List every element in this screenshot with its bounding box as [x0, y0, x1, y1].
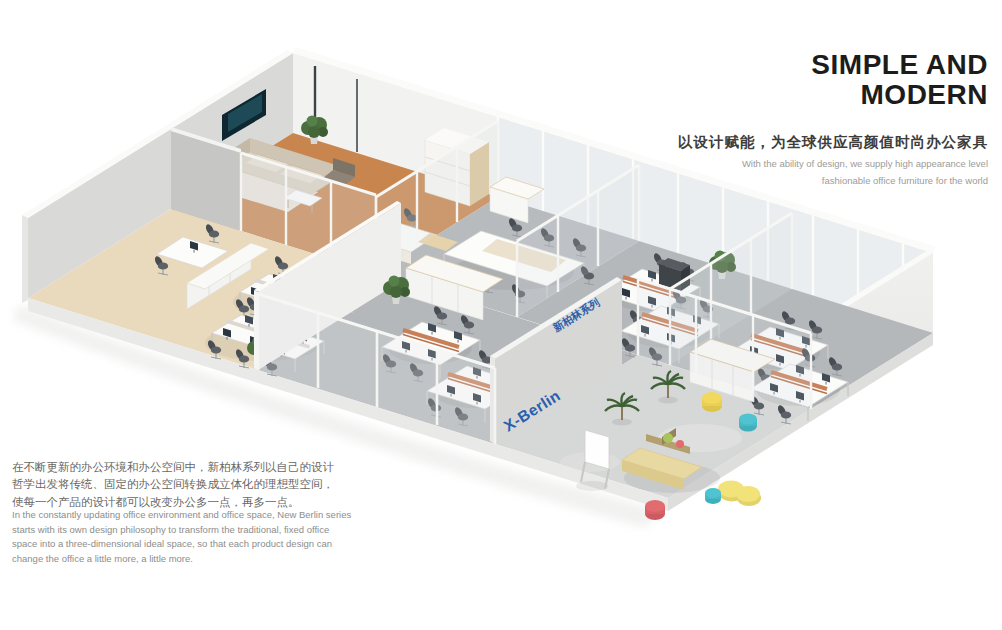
description-zh: 在不断更新的办公环境和办公空间中，新柏林系列以自己的设计哲学出发将传统、固定的办… [12, 459, 344, 511]
pouf-yellow [702, 392, 722, 412]
title-line-1: SIMPLE AND [811, 50, 988, 80]
pouf-teal-small [705, 488, 721, 504]
brochure-page: 新柏林系列 X-Berlin [0, 0, 1002, 630]
subtitle-en: With the ability of design, we supply hi… [742, 156, 988, 189]
description-en: In the constantly updating office enviro… [12, 508, 352, 567]
page-title: SIMPLE AND MODERN [811, 50, 988, 110]
title-line-2: MODERN [811, 80, 988, 110]
pouf-pink [645, 500, 665, 520]
subtitle-en-line-2: fashionable office furniture for the wor… [742, 173, 988, 190]
pouf-kidney-yellow [718, 481, 761, 507]
tagline-zh: 以设计赋能，为全球供应高颜值时尚办公家具 [678, 133, 988, 152]
subtitle-en-line-1: With the ability of design, we supply hi… [742, 156, 988, 173]
pouf-teal [739, 414, 757, 432]
